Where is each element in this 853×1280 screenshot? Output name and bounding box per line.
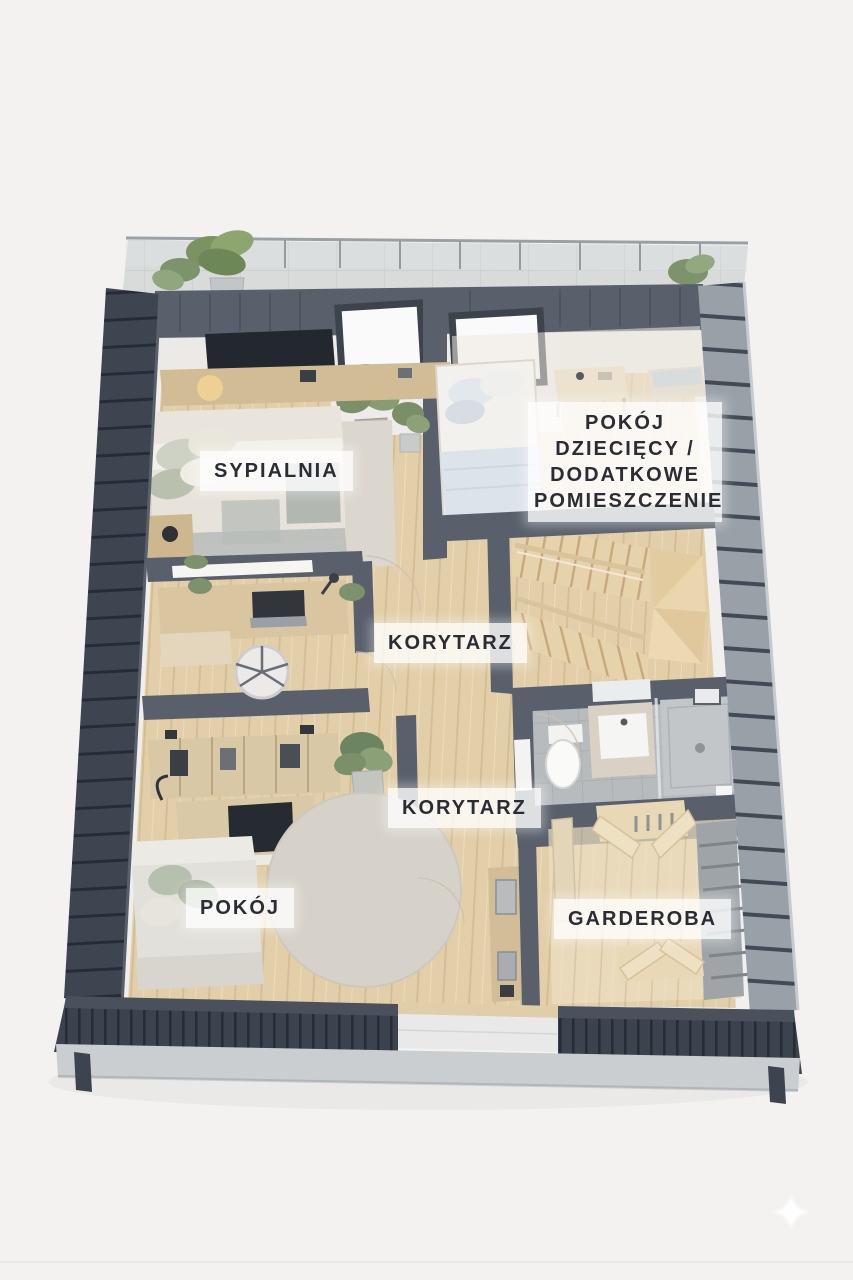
sparkle-icon: ✦ [763, 1186, 819, 1242]
laptop [252, 590, 305, 620]
bottom-room [128, 715, 461, 990]
bathroom-door [514, 739, 532, 791]
photo-edge-line [0, 1261, 853, 1263]
room-label-korytarz-upper: KORYTARZ [374, 623, 527, 663]
window-1 [338, 303, 424, 373]
room-label-pokoj-dzieciecy: POKÓJ DZIECIĘCY / DODATKOWE POMIESZCZENI… [528, 402, 722, 522]
towel [716, 786, 732, 796]
gutter-bracket-left [74, 1052, 92, 1092]
bedside-lamp-glow [197, 375, 223, 401]
shower [656, 688, 738, 800]
shelf-plant [184, 555, 208, 569]
floor-plan-3d: SYPIALNIA POKÓJ DZIECIĘCY / DODATKOWE PO… [0, 0, 853, 1280]
vanity [588, 702, 656, 778]
corridor-console [488, 866, 524, 1002]
kids-bench [648, 366, 706, 400]
room-label-garderoba: GARDEROBA [554, 899, 731, 939]
kids-bed [436, 360, 542, 528]
room-label-pokoj: POKÓJ [186, 888, 294, 928]
room-label-korytarz-lower: KORYTARZ [388, 788, 541, 828]
desk-plant [188, 578, 212, 594]
shower-head [694, 688, 720, 704]
room-label-sypialnia: SYPIALNIA [200, 451, 353, 491]
gutter-bracket-right [768, 1066, 786, 1104]
bathroom-mirror [592, 679, 651, 702]
sideboard-decor [300, 370, 316, 382]
tv [205, 329, 335, 372]
nightstand [146, 514, 194, 558]
toilet [546, 724, 583, 788]
shelf-unit [148, 725, 341, 799]
office-chair [236, 646, 288, 698]
desk-plant-2 [339, 583, 365, 601]
sideboard-decor-2 [398, 368, 412, 378]
stairwell-left-wall [487, 522, 513, 694]
office-right-wall [352, 561, 375, 653]
